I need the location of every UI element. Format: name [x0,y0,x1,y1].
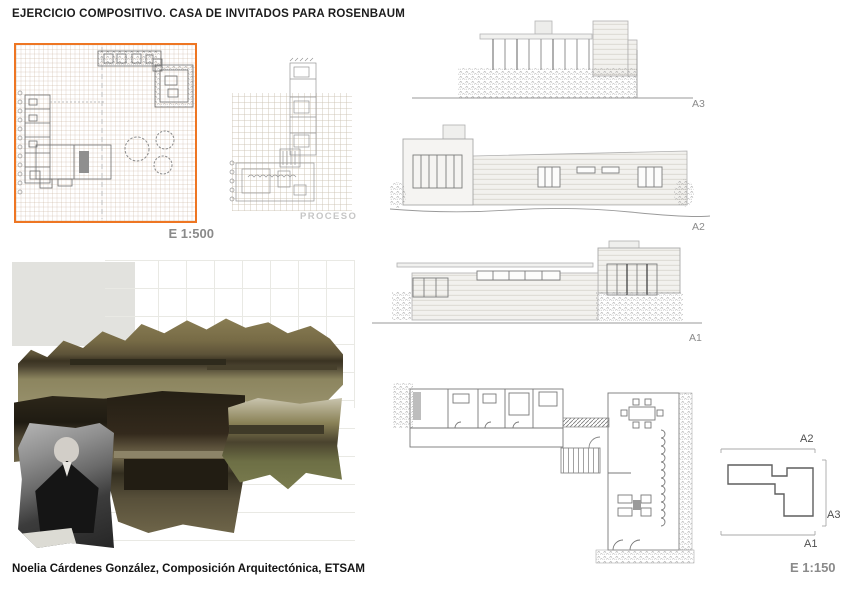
plan-living-wing [608,393,679,550]
photo-collage [10,258,355,558]
elevation-a3-label: A3 [692,98,705,110]
key-plan-scale-label: E 1:150 [790,560,836,575]
carport-shadow [124,459,229,490]
plan-walkway [563,418,609,427]
panorama-roof-slab [70,359,226,365]
a1-hedge-left [392,291,411,320]
site-plan-scale-label: E 1:500 [156,226,214,241]
key-plan-diagram: A2 A3 A1 [718,428,844,578]
presentation-board: EJERCICIO COMPOSITIVO. CASA DE INVITADOS… [0,0,848,600]
a1-tall-block [598,248,680,293]
house-lawn-roof-band [222,425,324,434]
key-plan-label-a1: A1 [804,538,817,550]
key-plan-drawing [718,428,844,578]
elevation-a2-drawing [390,120,710,228]
a1-roof-slab [397,263,593,267]
wright-head [54,437,80,463]
a2-tall-block [403,139,473,205]
plan-veg-band-bottom [596,550,694,563]
site-vegetation [18,91,22,194]
a1-hedge-right [596,291,683,321]
carport-roof-fascia [114,451,241,458]
plan-veg-band-right [679,393,692,550]
site-plan-panel [14,43,197,223]
collage-photo-carport [107,391,245,533]
a3-hedge [458,68,637,98]
panorama-roof-slab-2 [207,365,337,370]
site-plan-drawing [16,45,195,221]
site-trees [125,131,174,174]
a1-clerestory [477,271,560,280]
a3-columns [493,39,589,70]
key-plan-label-a3: A3 [827,509,840,521]
process-sketch-drawing [228,45,356,227]
process-panel: PROCESO [228,45,356,227]
elevation-a1-label: A1 [689,332,702,344]
key-footprint-outline [728,465,813,516]
page-title: EJERCICIO COMPOSITIVO. CASA DE INVITADOS… [12,8,405,20]
wright-papers [18,528,78,548]
credit-line: Noelia Cárdenes González, Composición Ar… [12,563,365,575]
a2-bush-right [674,179,694,207]
floor-plan-drawing [393,380,703,578]
a2-ground-line [390,208,710,216]
key-plan-label-a2: A2 [800,433,813,445]
main-house-plan [98,51,193,107]
proceso-watermark: PROCESO [300,211,357,222]
elevation-a3-drawing [405,10,705,105]
collage-photo-wright-portrait [18,423,114,548]
plan-bedroom-wing [410,389,563,447]
elevation-a1-drawing [372,236,707,338]
guest-house-plan [25,95,111,188]
plan-stairs [561,437,600,473]
elevation-a2-label: A2 [692,221,705,233]
